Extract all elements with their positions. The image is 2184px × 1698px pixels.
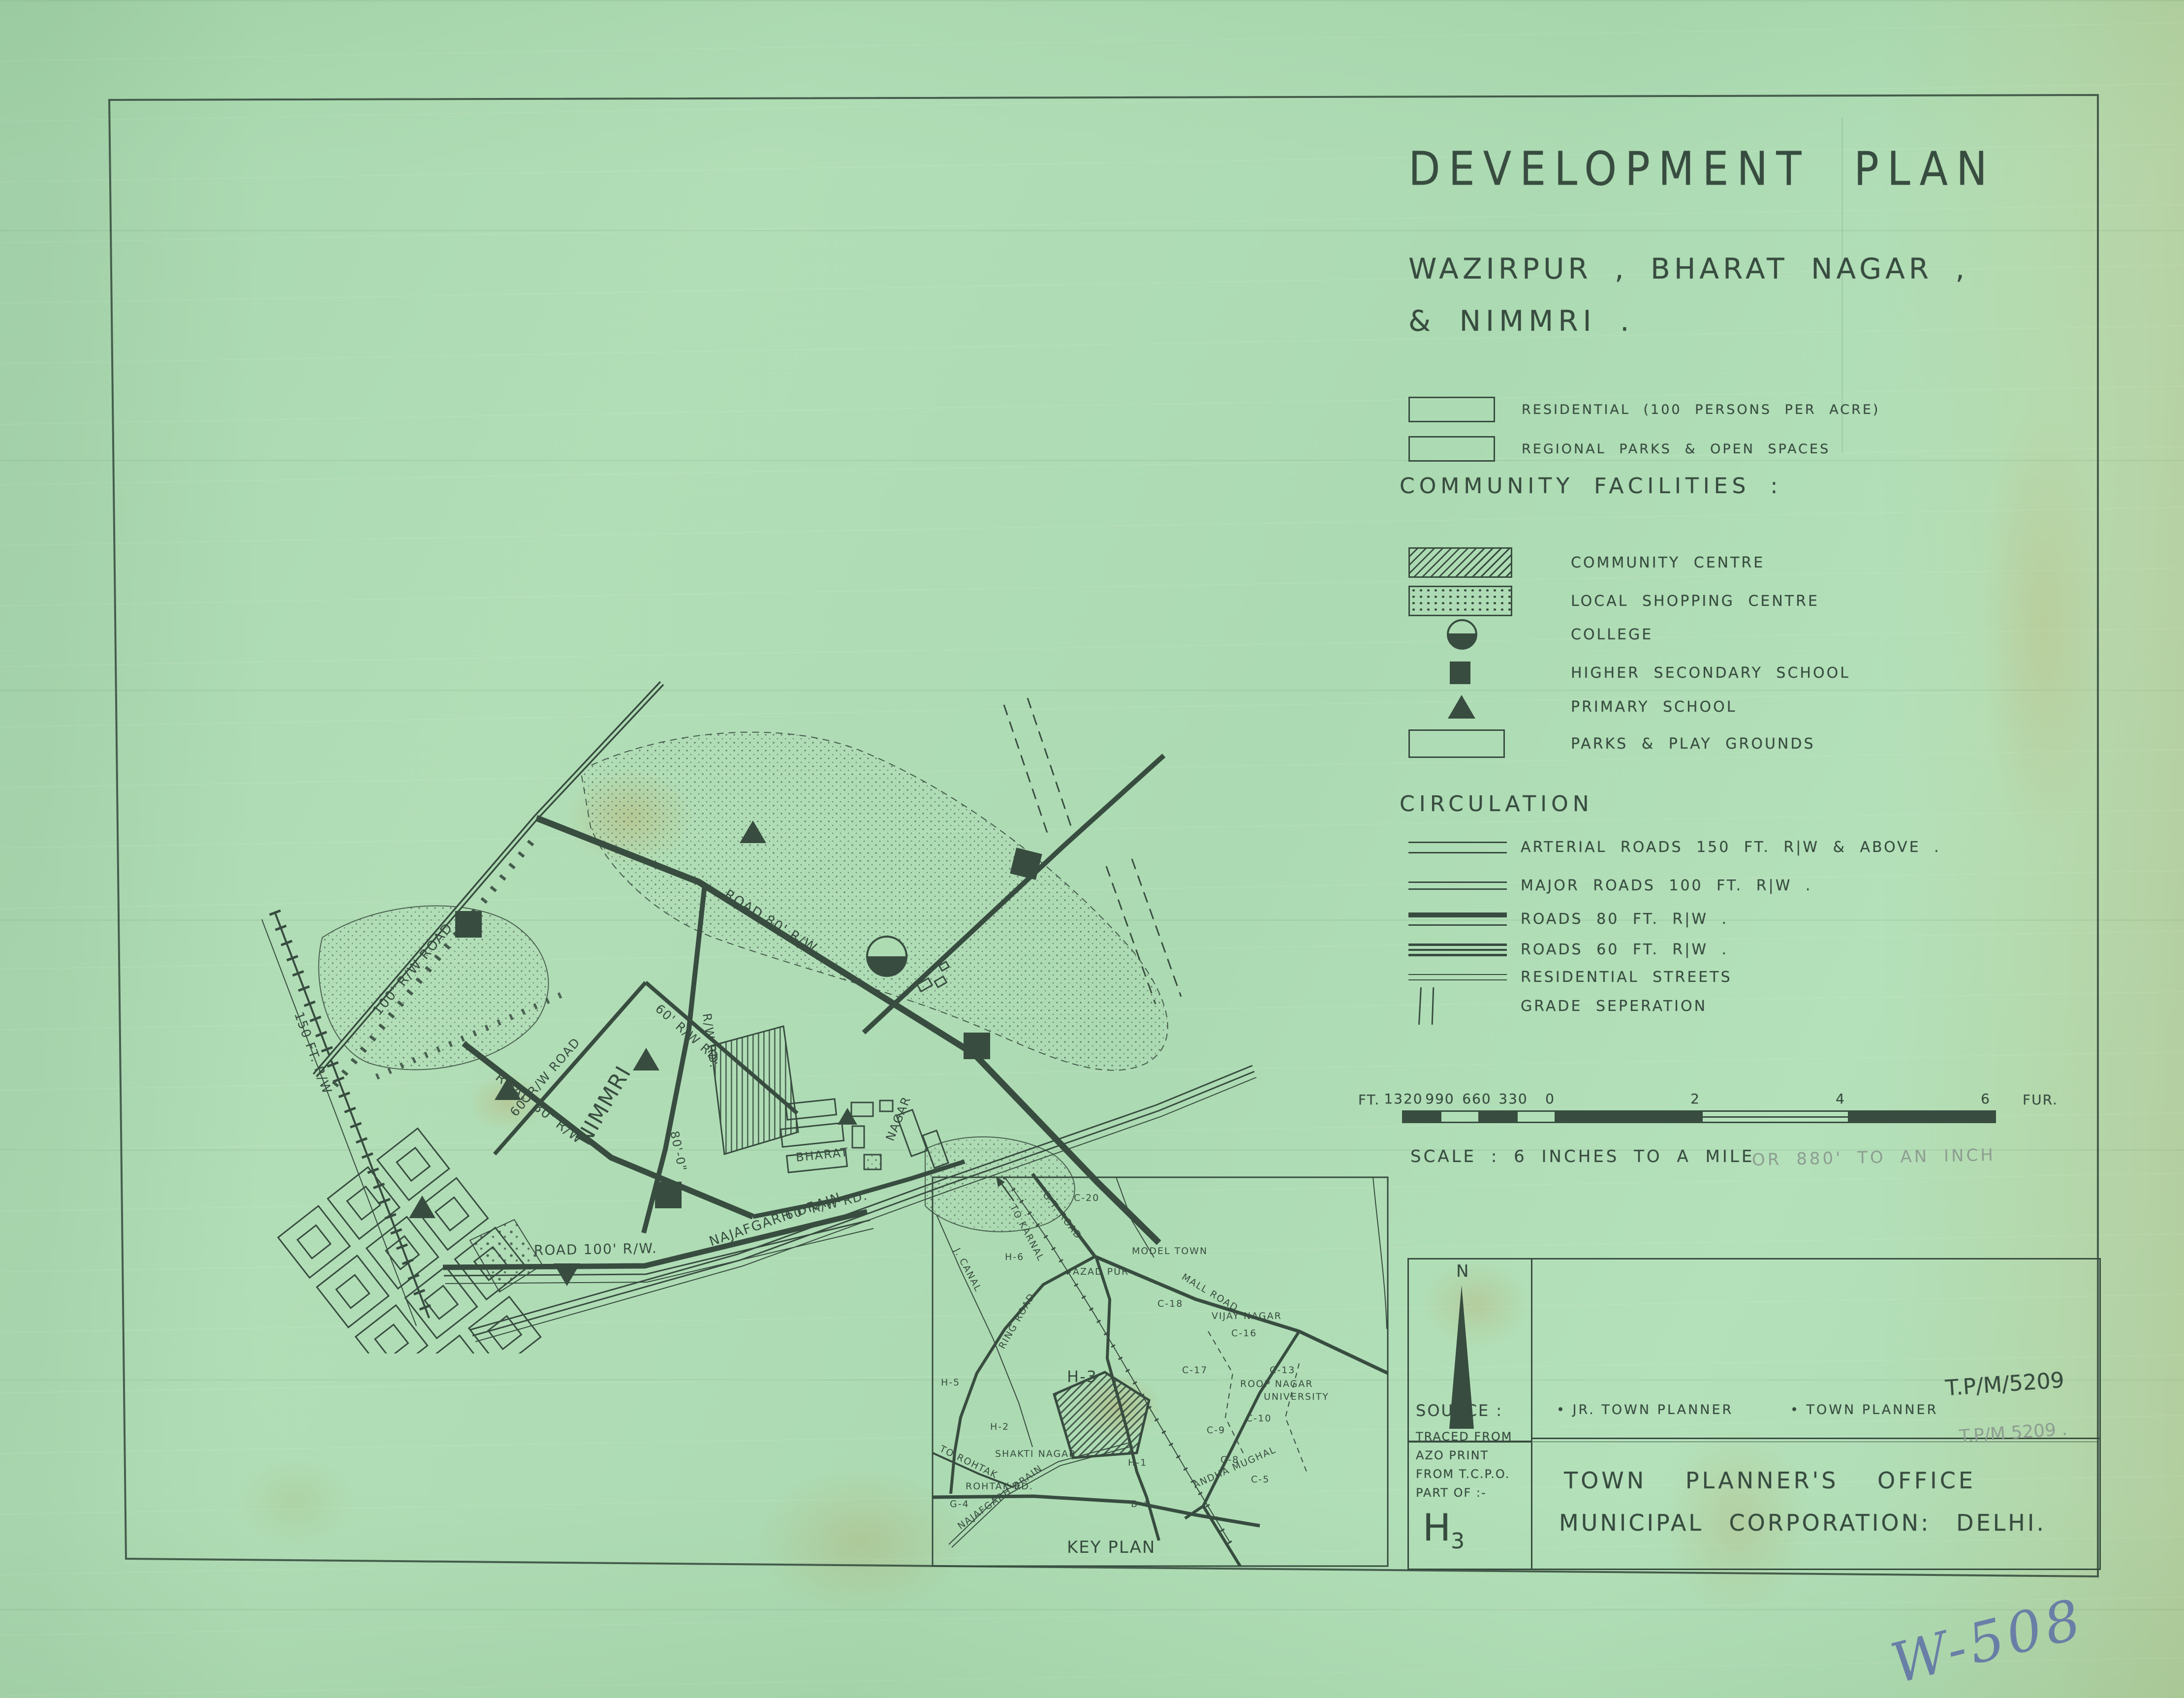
circulation-heading: CIRCULATION: [1400, 791, 1593, 817]
najafgarh-drain: [475, 1077, 1256, 1342]
key-plan-road: [1185, 1331, 1299, 1518]
paper-stain: [566, 768, 694, 866]
road-centre: [536, 683, 662, 817]
road-100ft: [315, 817, 536, 1075]
key-plan-label: C-9: [1207, 1425, 1225, 1436]
legend-row-residential: RESIDENTIAL (100 PERSONS PER ACRE): [1408, 397, 1880, 422]
road-label: ROAD 80' R/W: [493, 1069, 586, 1147]
locality-label-bharat: BHARAT: [795, 1145, 849, 1164]
road-label: 80'-0": [667, 1130, 689, 1173]
legend-label: REGIONAL PARKS & OPEN SPACES: [1522, 441, 1830, 457]
scale-segment: [1555, 1110, 1703, 1123]
ring-road: [951, 1257, 1095, 1494]
legend-row-higher-secondary: HIGHER SECONDARY SCHOOL: [1408, 661, 1850, 684]
circulation-label: RESIDENTIAL STREETS: [1521, 969, 1732, 986]
road-label: ROAD 100' R/W.: [534, 1240, 657, 1258]
key-plan-label: C-5: [1251, 1474, 1270, 1485]
proposed-road: [1004, 705, 1047, 833]
circulation-label: MAJOR ROADS 100 FT. R|W .: [1521, 877, 1812, 894]
scale-segment: [1848, 1110, 1996, 1123]
road-60ft: [495, 982, 646, 1154]
road-60ft: [646, 982, 797, 1113]
primary-school-icon: [633, 1048, 659, 1070]
paper-stain: [236, 1457, 354, 1545]
legend-row-local-shopping: LOCAL SHOPPING CENTRE: [1408, 586, 1819, 616]
road-label: 100' R/W ROAD: [370, 920, 456, 1018]
proposed-road: [1106, 866, 1155, 1004]
office-name-line2: MUNICIPAL CORPORATION: DELHI.: [1559, 1509, 2046, 1536]
primary-school-icon: [409, 1195, 436, 1218]
key-plan-label: C-18: [1157, 1298, 1183, 1309]
circulation-row-60ft: ROADS 60 FT. R|W .: [1408, 941, 1728, 958]
key-plan-label: TO KARNAL: [1007, 1202, 1046, 1263]
scale-tick: 2: [1690, 1091, 1700, 1107]
park-area: [319, 906, 549, 1070]
key-plan-label: VIJAY NAGAR: [1212, 1311, 1282, 1321]
locality-label-nagar: NAGAR: [883, 1094, 914, 1143]
railway-line: [1005, 1177, 1230, 1543]
map-linework: [262, 683, 1256, 1353]
bharat-nagar-buildings: [780, 962, 955, 1172]
road-60ft-swatch: [1408, 943, 1507, 956]
plan-subtitle-line1: WAZIRPUR , BHARAT NAGAR ,: [1408, 252, 1968, 285]
scale-unit-right: FUR.: [2023, 1092, 2058, 1108]
key-plan-label: ROHTAK RD.: [966, 1481, 1033, 1492]
key-plan-label: B-4: [1131, 1499, 1150, 1509]
najafgarh-drain: [949, 1442, 1132, 1544]
road-100ft: [536, 683, 662, 817]
college-icon: [1447, 619, 1477, 650]
road-100ft-south: [443, 1212, 867, 1267]
key-plan-label: UNIVERSITY: [1264, 1391, 1329, 1402]
college-icon-half: [867, 956, 906, 976]
mall-road: [1095, 1257, 1388, 1373]
drawing-ref-number: T.P/M/5209: [1945, 1368, 2065, 1401]
key-plan-label: SHAKTI NAGAR: [995, 1448, 1076, 1459]
title-block-divider: [1531, 1259, 1532, 1569]
higher-secondary-school-icon: [964, 1033, 990, 1059]
key-plan-label: C-13: [1270, 1365, 1295, 1376]
source-note-line: FROM T.C.P.O.: [1416, 1467, 1510, 1481]
legend-row-parks-playgrounds: PARKS & PLAY GROUNDS: [1408, 729, 1815, 758]
key-plan-label: G-4: [950, 1499, 969, 1509]
key-plan-label: C-8: [1220, 1454, 1239, 1465]
legend-label: HIGHER SECONDARY SCHOOL: [1571, 664, 1850, 682]
primary-school-icon: [495, 1077, 521, 1100]
legend-row-college: COLLEGE: [1408, 619, 1653, 650]
najafgarh-drain: [952, 1446, 1133, 1547]
paper-stain: [1978, 404, 2106, 847]
orchard-area: [470, 1220, 542, 1292]
legend-label: PARKS & PLAY GROUNDS: [1571, 735, 1815, 753]
railway-label: 150 FT. R/W: [291, 1010, 334, 1097]
higher-secondary-school-icon: [655, 1182, 682, 1208]
town-planner-signature: • TOWN PLANNER: [1790, 1402, 1938, 1417]
higher-secondary-school-icon: [455, 911, 482, 938]
key-plan-label: MALL ROAD: [1180, 1271, 1240, 1314]
key-plan-inset: C-20 G.T. ROAD TO KARNAL J. CANAL H-6 RI…: [925, 1169, 1393, 1570]
scale-tick: 660: [1462, 1091, 1491, 1107]
key-plan-label: NAJAFGARH DRAIN: [956, 1463, 1045, 1532]
circulation-label: ARTERIAL ROADS 150 FT. R|W & ABOVE .: [1521, 839, 1941, 856]
sheet-code-letter: H: [1423, 1506, 1451, 1549]
key-plan-label: RING ROAD: [997, 1291, 1037, 1351]
sector-boundary: [1373, 1177, 1387, 1329]
scale-caption: SCALE : 6 INCHES TO A MILE: [1410, 1147, 1754, 1166]
source-note-line: AZO PRINT: [1416, 1448, 1489, 1462]
locality-label-nimmri: NIMMRI: [571, 1061, 636, 1149]
sector-boundary: [1208, 1331, 1245, 1457]
primary-school-icon: [554, 1263, 580, 1286]
key-plan-linework: [933, 1174, 1388, 1566]
scale-caption-pencil: OR 880' TO AN INCH: [1752, 1145, 1996, 1170]
grade-separation-swatch: [1408, 987, 1507, 1025]
road-80ft-swatch: [1408, 912, 1507, 926]
circulation-row-grade-separation: GRADE SEPERATION: [1408, 987, 1707, 1025]
road-80ft: [864, 755, 1164, 1033]
primary-school-icon: [1448, 695, 1475, 719]
road-centre: [315, 817, 536, 1075]
scale-tick: 1320: [1384, 1091, 1423, 1107]
circulation-label: ROADS 60 FT. R|W .: [1521, 941, 1728, 958]
tree-row: [376, 993, 565, 1077]
paper-stain: [468, 1073, 546, 1132]
scale-bar: [1404, 1110, 1996, 1123]
scale-unit-left: FT.: [1358, 1092, 1380, 1108]
railway-line: [275, 912, 429, 1318]
north-label: N: [1456, 1261, 1468, 1281]
regional-park-area: [581, 732, 1168, 1070]
source-label: SOURCE :: [1416, 1401, 1503, 1420]
community-facilities-heading: COMMUNITY FACILITIES :: [1400, 473, 1782, 499]
legend-row-regional-parks: REGIONAL PARKS & OPEN SPACES: [1408, 436, 1830, 462]
regional-parks-swatch: [1408, 436, 1495, 462]
circulation-row-residential-streets: RESIDENTIAL STREETS: [1408, 969, 1732, 986]
key-plan-label: C-16: [1231, 1328, 1257, 1339]
drain-label: NAJAFGARH DRAIN: [707, 1190, 843, 1249]
road-80ft: [536, 818, 1159, 1243]
legend-label: PRIMARY SCHOOL: [1571, 698, 1737, 716]
key-plan-caption: KEY PLAN: [1067, 1538, 1155, 1557]
to-karnal-arrow: [999, 1180, 1014, 1201]
key-plan-label: H-2: [990, 1421, 1009, 1432]
park-area: [925, 1137, 1075, 1232]
road-label: 60' R/W ROAD: [507, 1035, 583, 1119]
key-plan-border: [933, 1177, 1388, 1566]
najafgarh-drain: [470, 1066, 1252, 1330]
residential-street-swatch: [1408, 974, 1507, 980]
road-80ft-mid: [464, 1043, 753, 1217]
key-plan-label: AZAD PUR: [1073, 1266, 1129, 1277]
key-plan-label-h3: H-3: [1067, 1367, 1097, 1386]
circulation-label: GRADE SEPERATION: [1521, 998, 1707, 1015]
scanned-drawing-sheet: DEVELOPMENT PLAN WAZIRPUR , BHARAT NAGAR…: [0, 0, 2184, 1698]
college-icon: [867, 937, 906, 976]
road-label: 60' R/W RD.: [653, 1002, 726, 1068]
key-plan-label: H-6: [1005, 1252, 1024, 1262]
road-label: R/W RD.: [700, 1012, 721, 1069]
sheet-code: H3: [1423, 1506, 1465, 1554]
key-plan-label: ANDHA MUGHAL: [1191, 1444, 1278, 1490]
rohtak-road: [933, 1496, 1260, 1526]
paper-stain: [758, 1467, 965, 1614]
key-plan-label: C-17: [1182, 1365, 1208, 1376]
scale-segment: [1701, 1110, 1849, 1123]
title-block: N SOURCE : TRACED FROM AZO PRINT FROM T.…: [1407, 1258, 2101, 1570]
jr-town-planner-signature: • JR. TOWN PLANNER: [1557, 1402, 1733, 1417]
arrow-head-icon: [996, 1176, 1005, 1187]
local-shopping-centre-swatch: [1408, 586, 1512, 616]
gt-road: [1032, 1174, 1095, 1257]
source-note-line: PART OF :-: [1416, 1486, 1487, 1500]
circulation-label: ROADS 80 FT. R|W .: [1521, 911, 1728, 928]
key-plan-label: ROOP NAGAR: [1240, 1379, 1313, 1389]
road-label: 60' R/W RD.: [783, 1188, 869, 1223]
railway-parallel-line: [262, 919, 416, 1326]
key-plan-road: [1096, 1258, 1159, 1541]
key-plan-label: C-10: [1246, 1413, 1272, 1424]
proposed-road: [1028, 698, 1071, 826]
key-plan-label: H-5: [941, 1377, 960, 1388]
scale-tick: 0: [1545, 1091, 1555, 1107]
map-symbols: [409, 820, 1042, 1286]
primary-school-icon: [838, 1108, 857, 1125]
scale-segment: [1478, 1110, 1518, 1123]
key-plan-label: C-20: [1074, 1193, 1099, 1203]
source-note-line: TRACED FROM: [1416, 1430, 1512, 1444]
key-plan-road: [1203, 1506, 1240, 1566]
drawing-ref-number-pencil: T.P/M 5209 .: [1959, 1419, 2068, 1446]
circulation-row-80ft: ROADS 80 FT. R|W .: [1408, 911, 1728, 928]
tree-row: [335, 833, 539, 1085]
scale-segment: [1440, 1110, 1480, 1123]
key-plan-label: J. CANAL: [951, 1246, 984, 1294]
residential-swatch: [1408, 397, 1495, 422]
road-label: ROAD 80' R/W: [721, 887, 820, 956]
community-centre-swatch: [1408, 547, 1512, 578]
sector-boundary: [1116, 1177, 1154, 1258]
legend-label: LOCAL SHOPPING CENTRE: [1571, 593, 1819, 610]
higher-secondary-school-icon: [1010, 848, 1042, 880]
legend-label: COLLEGE: [1571, 626, 1653, 643]
circulation-row-major: MAJOR ROADS 100 FT. R|W .: [1408, 877, 1812, 894]
major-road-swatch: [1408, 881, 1507, 890]
key-plan-label: MODEL TOWN: [1132, 1246, 1208, 1257]
sector-boundary: [1285, 1363, 1307, 1472]
plan-title: DEVELOPMENT PLAN: [1408, 142, 1996, 196]
parks-playgrounds-swatch: [1408, 729, 1505, 758]
higher-secondary-school-icon: [1450, 661, 1470, 684]
key-plan-label: TO ROHTAK: [937, 1443, 999, 1481]
plan-subtitle-line2: & NIMMRI .: [1408, 304, 1634, 338]
paper-stain: [1073, 1373, 1161, 1442]
railway-ticks: [1005, 1177, 1230, 1543]
arterial-road-swatch: [1408, 842, 1507, 853]
key-plan-label: H-1: [1128, 1457, 1147, 1468]
local-shopping-area: [711, 1026, 798, 1154]
legend-row-primary-school: PRIMARY SCHOOL: [1408, 695, 1737, 719]
key-plan-labels: C-20 G.T. ROAD TO KARNAL J. CANAL H-6 RI…: [937, 1190, 1329, 1557]
key-plan-label: G.T. ROAD: [1040, 1190, 1084, 1242]
circulation-row-arterial: ARTERIAL ROADS 150 FT. R|W & ABOVE .: [1408, 839, 1941, 856]
legend-label: RESIDENTIAL (100 PERSONS PER ACRE): [1522, 402, 1880, 417]
road-parallel: [444, 1220, 870, 1276]
handwritten-accession-number: W-508: [1885, 1587, 2090, 1697]
scale-segment: [1516, 1110, 1556, 1123]
proposed-road: [1132, 859, 1181, 997]
legend-row-community-centre: COMMUNITY CENTRE: [1408, 547, 1765, 578]
to-rohtak-road: [933, 1453, 1014, 1487]
main-map: 100' R/W ROAD ROAD 80' R/W 150 FT. R/W 6…: [187, 655, 1265, 1353]
road-parallel: [445, 1228, 874, 1284]
road-80ft-vertical: [644, 885, 705, 1233]
legend-label: COMMUNITY CENTRE: [1571, 554, 1765, 571]
railway-ticks: [275, 912, 429, 1318]
scale-tick: 4: [1836, 1091, 1845, 1107]
scale-segment: [1402, 1110, 1441, 1123]
road-60ft: [753, 1162, 965, 1217]
scale-tick: 330: [1498, 1091, 1528, 1107]
sheet-code-number: 3: [1451, 1529, 1465, 1554]
scale-tick: 990: [1425, 1091, 1454, 1107]
scale-tick: 6: [1981, 1091, 1991, 1107]
key-plan-h3-area: [1054, 1372, 1149, 1458]
map-labels: 100' R/W ROAD ROAD 80' R/W 150 FT. R/W 6…: [291, 887, 913, 1258]
najafgarh-drain: [472, 1071, 1254, 1336]
primary-school-icon: [740, 820, 766, 843]
office-name-line1: TOWN PLANNER'S OFFICE: [1564, 1467, 1976, 1494]
residential-block-grid: [278, 1129, 565, 1353]
j-canal: [936, 1215, 1032, 1447]
